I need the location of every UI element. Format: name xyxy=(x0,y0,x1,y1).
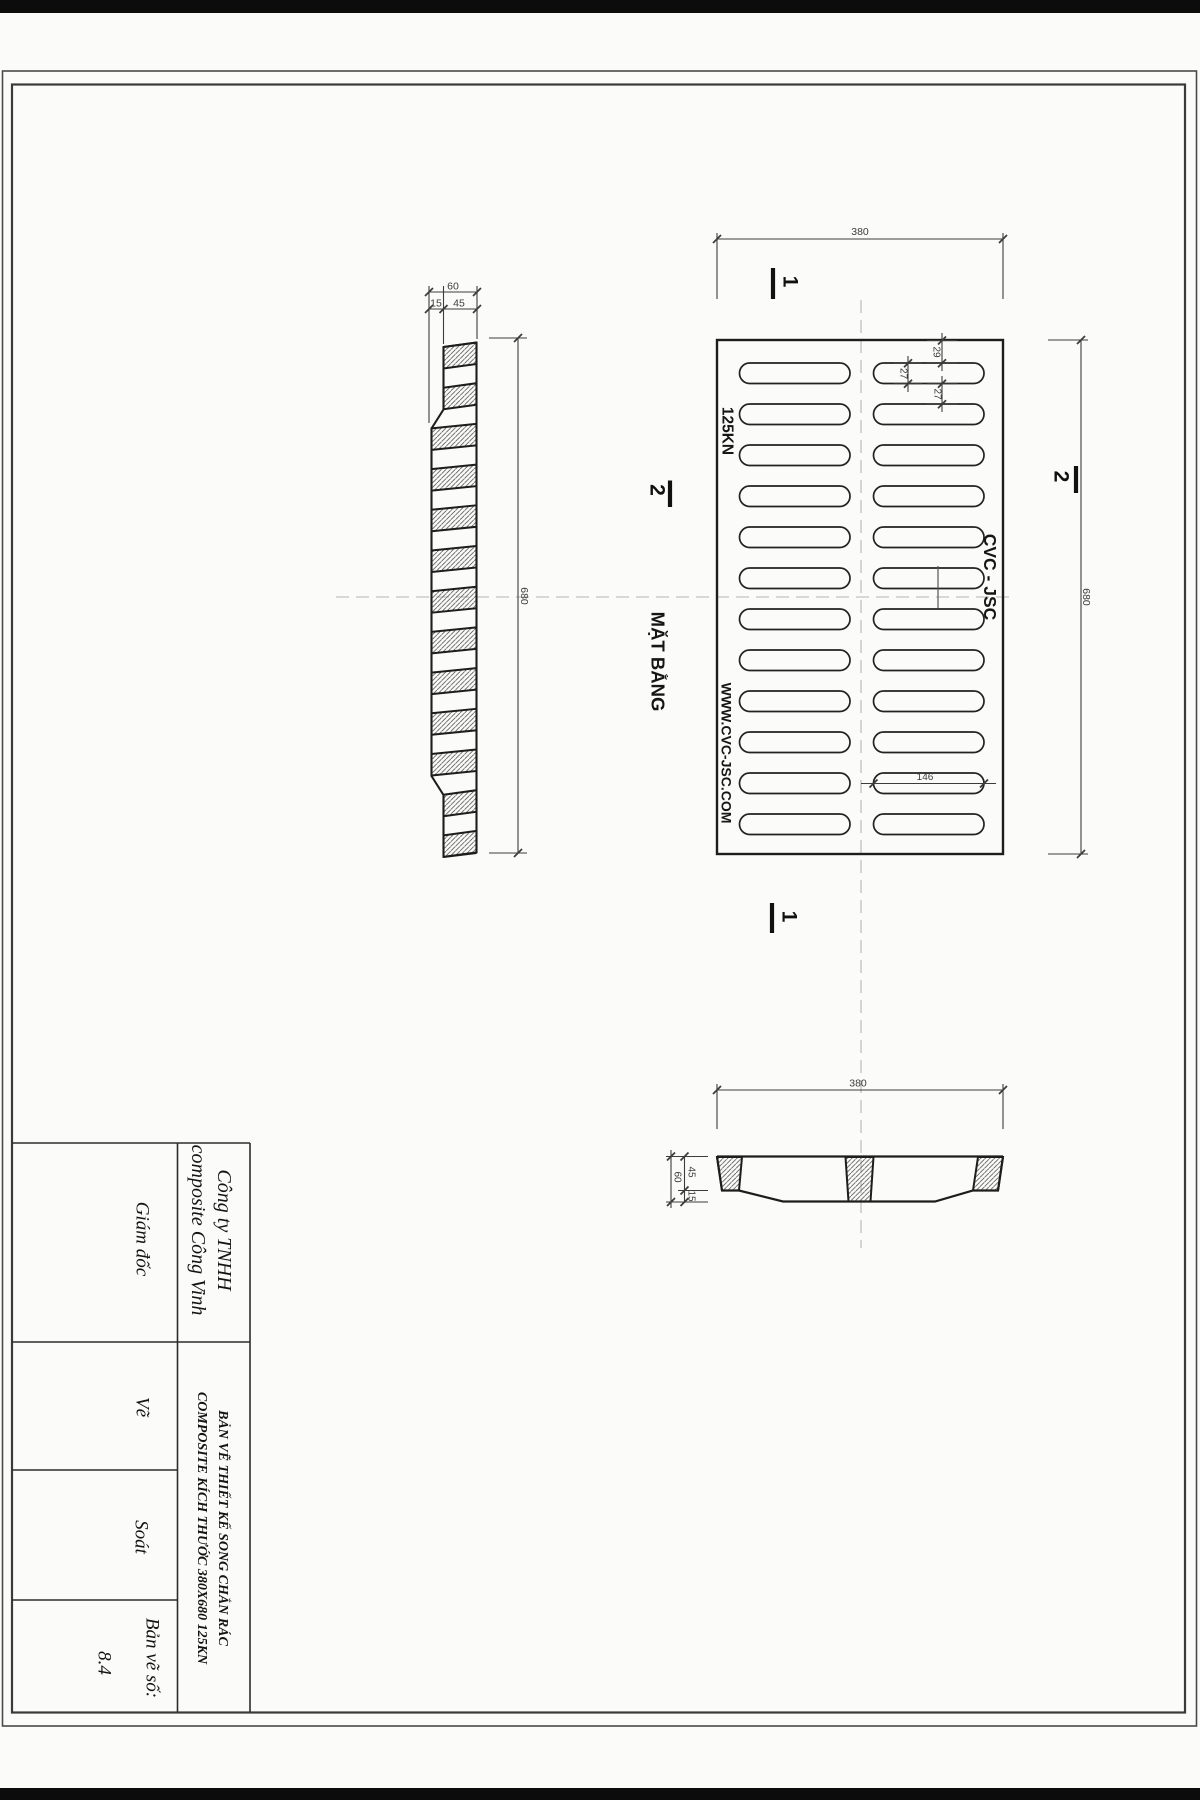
drawing-sheet: 60 15 45 680 380 xyxy=(0,0,1200,1800)
website-label: WWW.CVC-JSC.COM xyxy=(719,683,735,824)
grate-slot xyxy=(740,445,851,466)
grate-slot xyxy=(874,445,985,466)
rib-center xyxy=(846,1157,874,1202)
grate-slot xyxy=(874,732,985,753)
grate-slot xyxy=(874,486,985,507)
dim-end-margin: 29 xyxy=(931,346,942,358)
grate-slot xyxy=(740,691,851,712)
grate-slot xyxy=(740,568,851,589)
section-bar xyxy=(432,750,477,776)
side-section-view: 60 15 45 680 xyxy=(425,281,530,858)
plan-view: 380 680 29 xyxy=(713,226,1092,858)
grate-slot xyxy=(874,650,985,671)
grate-slot xyxy=(874,527,985,548)
checked-label: Soát xyxy=(129,1520,154,1554)
section-bar xyxy=(444,790,477,816)
grate-slot xyxy=(740,404,851,425)
section1-label-top: 1 xyxy=(779,276,802,288)
section1-label-bottom: 1 xyxy=(778,911,801,923)
grate-slot xyxy=(740,609,851,630)
rib-right xyxy=(973,1157,1003,1191)
section-bar xyxy=(432,627,477,653)
plan-width-dim-bottom xyxy=(713,1084,1007,1129)
grate-slot xyxy=(740,732,851,753)
section-bar xyxy=(432,709,477,735)
page-frame xyxy=(3,71,1197,1726)
drawing-number: 8.4 xyxy=(92,1651,117,1675)
scan-band-top xyxy=(0,0,1200,13)
dim-bar-step: 15 xyxy=(430,298,442,310)
section-bar xyxy=(432,424,477,450)
grate-slot xyxy=(740,363,851,384)
section-bar xyxy=(444,383,477,409)
bottom-section-view: 380 60 45 15 xyxy=(666,1078,1007,1209)
grate-slot xyxy=(874,568,985,589)
grate-slot xyxy=(874,404,985,425)
director-label: Giám đốc xyxy=(130,1202,155,1276)
dim-bar-total-width: 60 xyxy=(447,281,459,293)
dim-plan-length: 680 xyxy=(1080,588,1092,606)
section2-label-right: 2 xyxy=(1050,471,1073,483)
grate-slot xyxy=(740,814,851,835)
dim-section-length: 680 xyxy=(518,587,530,605)
plan-view-title: MẶT BẰNG xyxy=(648,612,669,712)
grate-slot xyxy=(874,814,985,835)
grate-slot xyxy=(874,609,985,630)
plan-width-dim-top xyxy=(713,233,1007,299)
section2-label-left: 2 xyxy=(646,484,669,496)
drawing-number-label: Bản vẽ số: xyxy=(140,1618,165,1698)
grate-slot xyxy=(874,691,985,712)
company-name: Công ty TNHH composite Công Vinh xyxy=(185,1145,237,1316)
section-bar xyxy=(432,465,477,491)
grate-slot xyxy=(874,363,985,384)
grate-slot xyxy=(740,773,851,794)
section-bar xyxy=(432,546,477,572)
scan-band-bottom xyxy=(0,1788,1200,1800)
dim-slot-length: 146 xyxy=(917,772,934,783)
grate-slot xyxy=(740,486,851,507)
section-bar xyxy=(432,587,477,613)
load-rating-label: 125KN xyxy=(719,407,736,455)
rib-left xyxy=(717,1157,742,1191)
section-bar xyxy=(432,668,477,694)
dim-slot-gap: 27 xyxy=(932,388,943,400)
grate-slot xyxy=(740,527,851,548)
dim-total-depth: 60 xyxy=(672,1171,683,1183)
drawing-title: BẢN VẼ THIẾT KẾ SONG CHẮN RÁC COMPOSITE … xyxy=(191,1392,233,1664)
dim-plan-width-bottom: 380 xyxy=(849,1078,867,1090)
dim-plan-width-top: 380 xyxy=(851,226,869,238)
grate-slot xyxy=(740,650,851,671)
dim-bar-top: 45 xyxy=(453,298,465,310)
section-bar xyxy=(432,505,477,531)
drawn-label: Vẽ xyxy=(130,1397,155,1417)
plan-slots xyxy=(740,363,985,835)
dim-rib-depth: 45 xyxy=(686,1166,697,1178)
dim-slot-width: 27 xyxy=(898,368,909,380)
brand-label: CVC - JSC xyxy=(980,534,1000,621)
dim-web-depth: 15 xyxy=(686,1190,697,1202)
